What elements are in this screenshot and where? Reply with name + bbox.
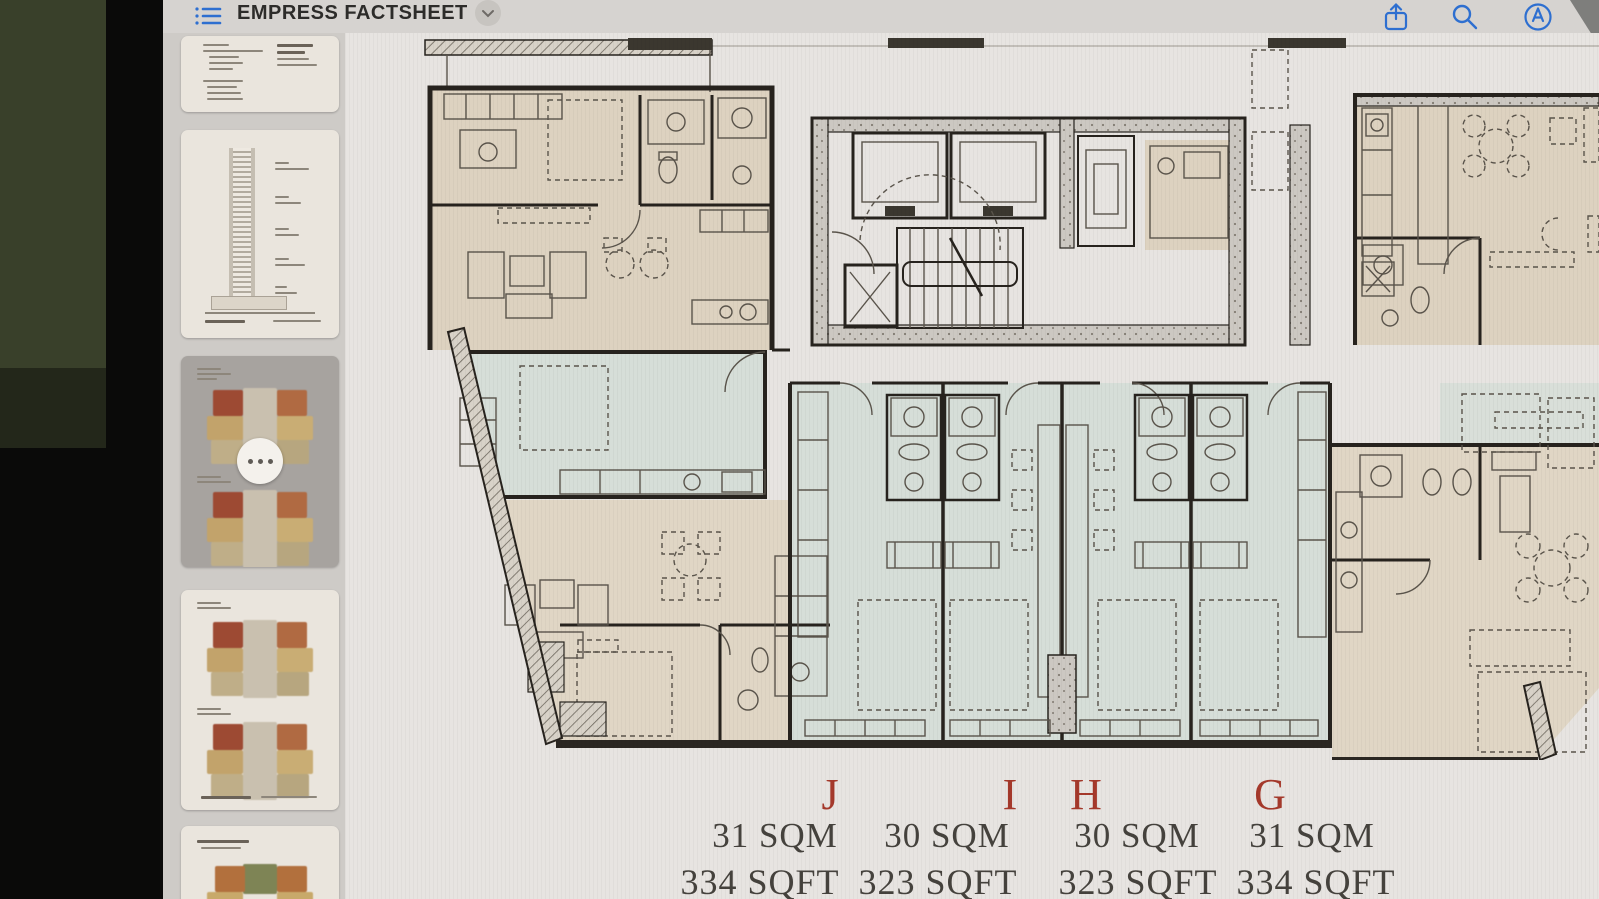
unit-sqm-I: 30 SQM — [872, 816, 1022, 856]
markup-button[interactable] — [1523, 2, 1553, 32]
desk-object-shadow — [0, 368, 106, 448]
title-dropdown-button[interactable] — [475, 0, 501, 26]
mini-floorplan — [201, 718, 319, 804]
thumbnail-page-4[interactable] — [181, 590, 339, 810]
thumbnail-sidebar — [163, 33, 345, 899]
unit-sqft-J: 334 SQFT — [670, 861, 850, 899]
elevator-2 — [951, 133, 1045, 218]
elevator-1 — [853, 133, 947, 218]
thumbnail-page-3-selected[interactable] — [181, 356, 339, 567]
desk-object — [0, 0, 106, 368]
thumbnail-page-5[interactable] — [181, 826, 339, 899]
thumbnail-page-1[interactable] — [181, 36, 339, 112]
unit-sqm-G: 31 SQM — [1237, 816, 1387, 856]
unit-sqft-G: 334 SQFT — [1226, 861, 1406, 899]
table-of-contents-icon[interactable] — [193, 2, 223, 32]
unit-letter-H: H — [1056, 769, 1116, 820]
unit-sqm-J: 31 SQM — [700, 816, 850, 856]
room-tints — [430, 88, 1599, 760]
floor-plan-drawing: .wall{fill:none;stroke:#27231e} .f{fill:… — [345, 33, 1599, 760]
corridor-right — [1252, 50, 1310, 345]
search-button[interactable] — [1450, 2, 1480, 32]
unit-letter-J: J — [800, 769, 860, 820]
toolbar: EMPRESS FACTSHEET — [163, 0, 1599, 33]
unit-letter-G: G — [1240, 769, 1300, 820]
pdf-viewer-window: EMPRESS FACTSHEET — [163, 0, 1599, 899]
unit-sqm-H: 30 SQM — [1062, 816, 1212, 856]
mini-floorplan — [201, 860, 319, 899]
thumbnail-page-2[interactable] — [181, 130, 339, 338]
mini-floorplan — [201, 486, 319, 567]
thumbnail-menu-button[interactable] — [237, 438, 283, 484]
unit-letter-I: I — [980, 769, 1040, 820]
tower-drawing — [229, 148, 255, 298]
share-button[interactable] — [1381, 2, 1411, 32]
document-title: EMPRESS FACTSHEET — [237, 2, 468, 25]
document-page: .wall{fill:none;stroke:#27231e} .f{fill:… — [345, 33, 1599, 899]
staircase — [860, 175, 1023, 328]
shaft — [845, 265, 897, 327]
desk-background — [0, 0, 163, 899]
chevron-down-icon — [481, 9, 495, 18]
unit-sqft-H: 323 SQFT — [1048, 861, 1228, 899]
mini-floorplan — [201, 616, 319, 702]
unit-sqft-I: 323 SQFT — [848, 861, 1028, 899]
